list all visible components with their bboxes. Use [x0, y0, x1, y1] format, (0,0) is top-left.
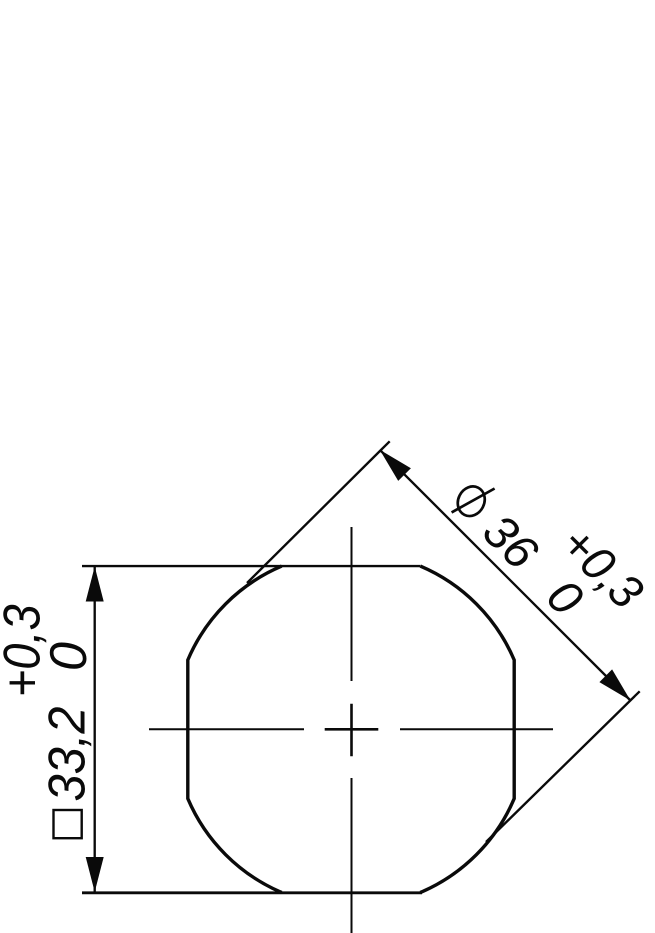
svg-text:33,2: 33,2: [39, 706, 97, 801]
svg-text:0: 0: [40, 642, 98, 671]
